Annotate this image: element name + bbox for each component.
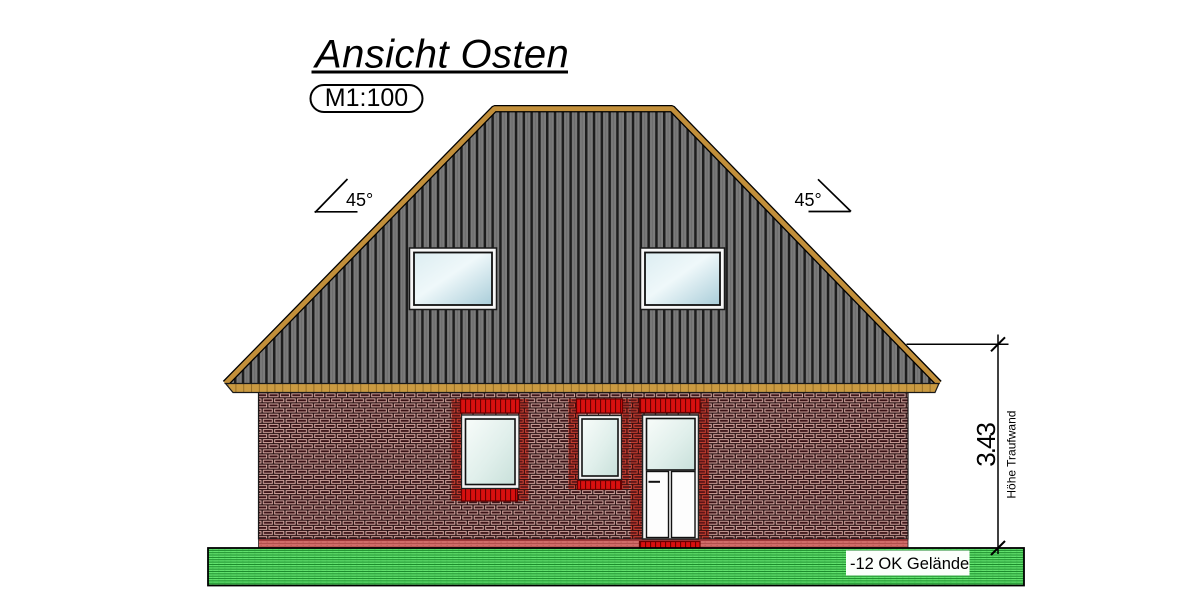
svg-text:45°: 45° xyxy=(346,190,373,210)
svg-text:3.43: 3.43 xyxy=(971,423,1001,467)
svg-text:-12 OK Gelände: -12 OK Gelände xyxy=(850,555,969,573)
svg-text:Ansicht Osten: Ansicht Osten xyxy=(313,33,569,77)
svg-text:45°: 45° xyxy=(795,190,822,210)
svg-text:Höhe Traufwand: Höhe Traufwand xyxy=(1005,411,1019,499)
svg-text:M1:100: M1:100 xyxy=(325,84,408,112)
